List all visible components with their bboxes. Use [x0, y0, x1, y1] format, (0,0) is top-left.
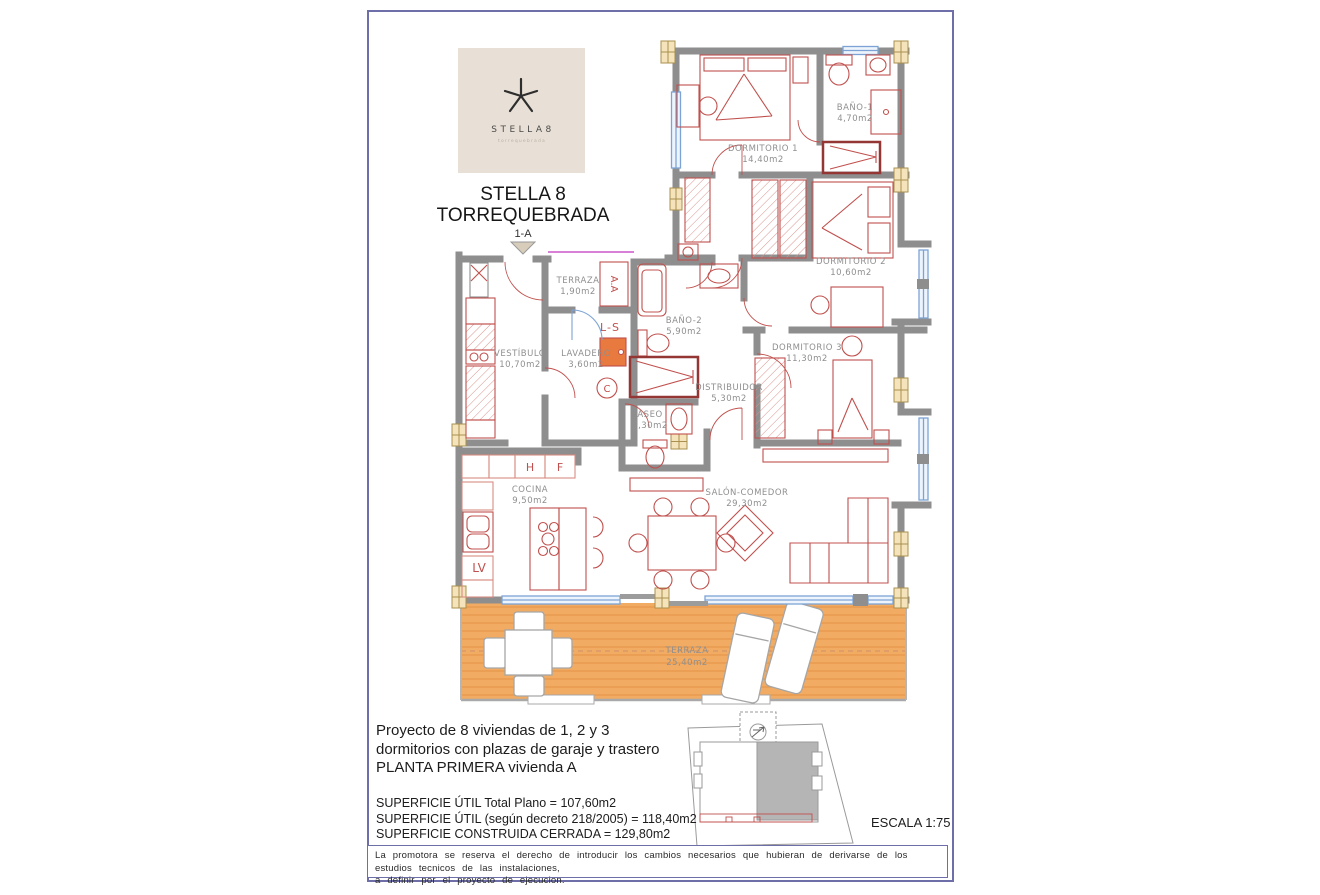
disclaimer-line1: La promotora se reserva el derecho de in…: [375, 850, 908, 874]
room-label-bano2: BAÑO-2: [666, 315, 702, 326]
sheet-title: STELLA 8 TORREQUEBRADA 1-A: [437, 184, 610, 254]
cocina-fixtures: [462, 455, 603, 597]
ac-label: A.A: [608, 276, 619, 293]
project-line1: Proyecto de 8 viviendas de 1, 2 y 3: [376, 722, 676, 741]
disclaimer-line2: a definir por el proyecto de ejecucion.: [375, 875, 565, 886]
laundry-door-swing: [572, 310, 602, 340]
room-area-dormitorio1: 14,40m2: [742, 155, 784, 165]
window-mullion: [853, 594, 868, 606]
project-description: Proyecto de 8 viviendas de 1, 2 y 3 dorm…: [376, 722, 676, 778]
room-label-terraza-gr: TERRAZA: [665, 646, 709, 656]
lv-label: LV: [472, 561, 486, 575]
f-label: F: [557, 461, 563, 474]
pillar: [894, 532, 908, 556]
pillar: [894, 588, 908, 608]
room-label-dormitorio2: DORMITORIO 2: [816, 257, 886, 267]
room-label-dormitorio3: DORMITORIO 3: [772, 343, 842, 353]
room-label-lavadero: LAVADERO: [561, 349, 611, 359]
unit-marker-label: 1-A: [514, 228, 532, 240]
room-area-salon: 29,30m2: [726, 499, 768, 509]
h-label: H: [526, 461, 534, 474]
surface-line2: SUPERFICIE ÚTIL (según decreto 218/2005)…: [376, 812, 706, 828]
room-label-salon: SALÓN-COMEDOR: [706, 486, 789, 498]
ls-label: L-S: [600, 321, 620, 334]
surface-summary: SUPERFICIE ÚTIL Total Plano = 107,60m2 S…: [376, 796, 706, 843]
room-area-bano1: 4,70m2: [837, 114, 873, 124]
room-area-dormitorio3: 11,30m2: [786, 354, 828, 364]
pillar: [670, 188, 682, 210]
room-label-dormitorio1: DORMITORIO 1: [728, 144, 798, 154]
room-area-cocina: 9,50m2: [512, 496, 548, 506]
surface-line3: SUPERFICIE CONSTRUIDA CERRADA = 129,80m2: [376, 827, 706, 843]
logo-brand-text: STELLA8: [491, 125, 555, 135]
title-line1: STELLA 8: [480, 184, 566, 205]
room-area-distribuidor: 5,30m2: [711, 394, 747, 404]
pillar: [452, 424, 466, 446]
room-label-terraza-peq: TERRAZA: [556, 276, 600, 286]
room-area-terraza-gr: 25,40m2: [666, 658, 708, 668]
pillar: [671, 434, 687, 449]
room-area-lavadero: 3,60m2: [568, 360, 604, 370]
surface-line1: SUPERFICIE ÚTIL Total Plano = 107,60m2: [376, 796, 706, 812]
floor-plan-sheet: { "logo": { "brand": "STELLA8", "sub": "…: [0, 0, 1320, 895]
logo-sub-text: torrequebrada: [498, 138, 546, 144]
room-label-vestibulo: VESTÍBULO: [494, 347, 546, 359]
room-area-dormitorio2: 10,60m2: [830, 268, 872, 278]
room-label-aseo: ASEO: [637, 410, 662, 420]
room-area-vestibulo: 10,70m2: [499, 360, 541, 370]
pillar: [655, 588, 669, 608]
room-area-aseo: 2,30m2: [632, 421, 668, 431]
pillar: [661, 41, 675, 63]
pillar: [894, 378, 908, 402]
room-label-distribuidor: DISTRIBUIDOR: [695, 383, 763, 393]
c-label: C: [604, 384, 611, 395]
window-mullion: [917, 454, 929, 464]
title-line2: TORREQUEBRADA: [437, 205, 610, 226]
dormitorio2-furniture: [811, 182, 893, 327]
room-area-terraza-peq: 1,90m2: [560, 287, 596, 297]
pillar: [894, 41, 908, 63]
scale-label: ESCALA 1:75: [871, 815, 951, 830]
pillar: [894, 168, 908, 192]
vestibulo-fixtures: [466, 263, 495, 438]
room-label-bano1: BAÑO-1: [837, 102, 873, 113]
project-line2: dormitorios con plazas de garaje y trast…: [376, 741, 676, 760]
unit-highlight: [757, 742, 818, 820]
room-area-bano2: 5,90m2: [666, 327, 702, 337]
window-mullion: [917, 279, 929, 289]
project-line3: PLANTA PRIMERA vivienda A: [376, 759, 676, 778]
logo-background: [458, 48, 585, 173]
brand-logo: STELLA8 torrequebrada: [458, 48, 585, 173]
room-label-cocina: COCINA: [512, 485, 548, 495]
disclaimer-box: La promotora se reserva el derecho de in…: [367, 845, 948, 878]
site-plan: [688, 712, 853, 856]
entry-arrow-icon: [511, 242, 535, 254]
